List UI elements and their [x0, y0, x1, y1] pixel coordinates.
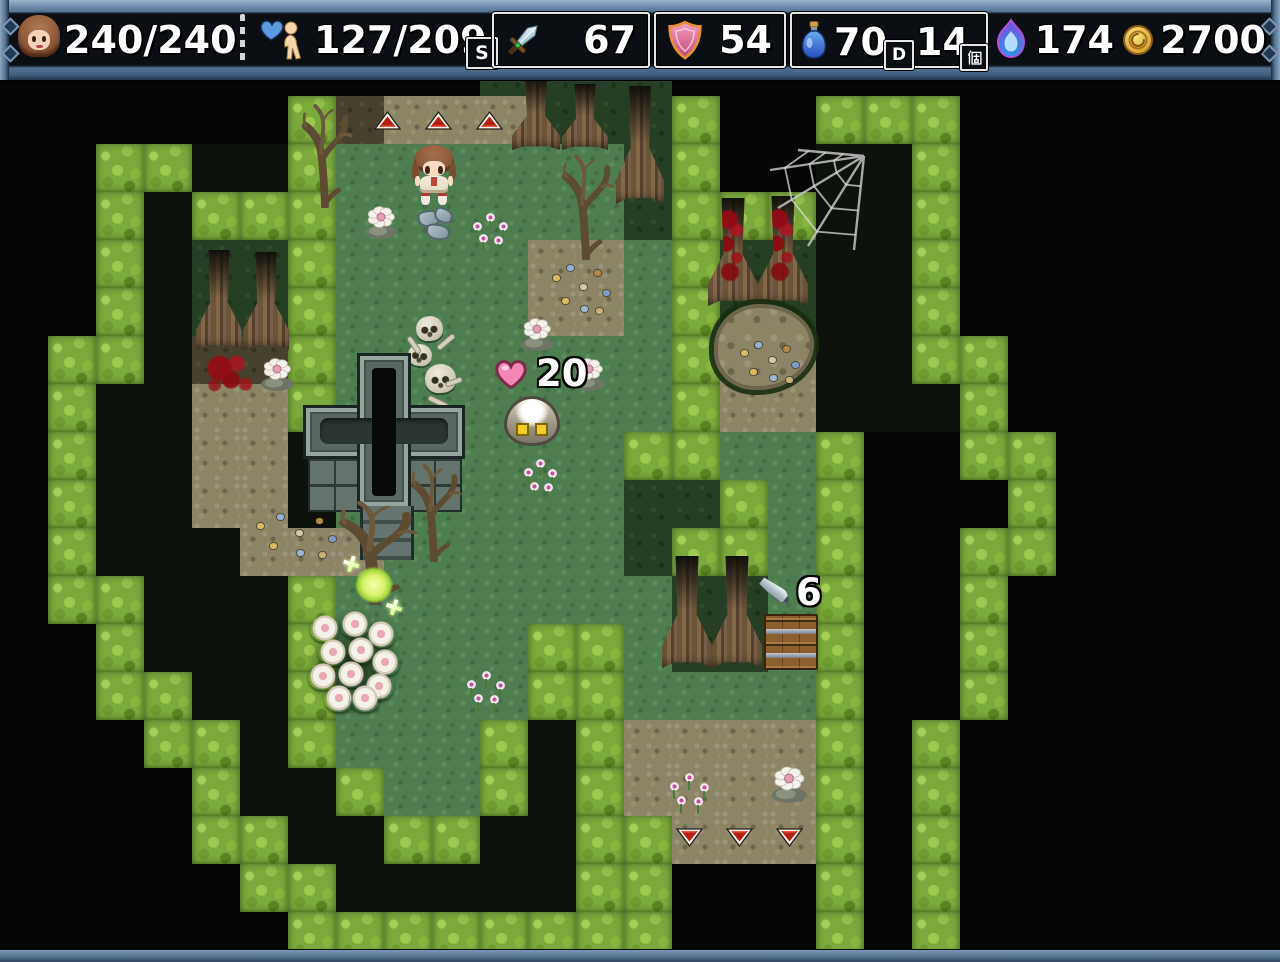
skill-value: 174	[1028, 17, 1114, 63]
tile-bush	[960, 672, 1008, 720]
tile-dirt	[192, 432, 240, 480]
hud-right-cap	[1271, 0, 1280, 80]
tile-grass	[624, 576, 672, 624]
tile-bush	[624, 432, 672, 480]
tile-grass	[768, 432, 816, 480]
tile-bush	[816, 672, 864, 720]
tile-bush	[1008, 480, 1056, 528]
tile-grass	[432, 576, 480, 624]
tile-dark-ground	[192, 144, 240, 192]
tile-bush	[96, 672, 144, 720]
kanji-ko-glyph	[966, 49, 983, 66]
tile-dark-ground	[144, 240, 192, 288]
tile-bush	[96, 144, 144, 192]
defense-value: 54	[704, 17, 784, 63]
flower-on-stone	[362, 204, 400, 240]
tile-bush	[816, 96, 864, 144]
tile-dark-ground	[528, 720, 576, 768]
tile-grass	[480, 144, 528, 192]
tile-bush	[960, 576, 1008, 624]
tile-bush	[576, 816, 624, 864]
tile-bush	[912, 720, 960, 768]
tile-bush	[576, 624, 624, 672]
damage-popup: 6	[758, 574, 822, 620]
tile-dark-ground	[816, 336, 864, 384]
face-eye	[32, 36, 36, 42]
dead-tree	[556, 148, 616, 260]
tile-bush	[816, 864, 864, 912]
potion-icon	[800, 20, 828, 60]
tile-bush	[96, 576, 144, 624]
tile-dark-ground	[816, 384, 864, 432]
tile-bush	[672, 144, 720, 192]
damage-amount: 6	[796, 574, 822, 611]
pink-flowers	[664, 770, 714, 812]
dead-tree	[296, 98, 354, 208]
tile-dark-ground	[912, 384, 960, 432]
tile-bush	[864, 96, 912, 144]
stone-creature	[504, 396, 560, 446]
tile-bush	[912, 768, 960, 816]
exit-arrow-down	[726, 828, 753, 847]
tile-dark-ground	[288, 816, 336, 864]
tile-bush	[912, 864, 960, 912]
tile-grass	[336, 720, 384, 768]
bottom-frame-bar	[0, 949, 1280, 962]
scattered-items	[548, 258, 612, 320]
wooden-crates	[764, 614, 818, 670]
tile-bush	[48, 480, 96, 528]
tile-grass	[432, 624, 480, 672]
tile-dark-ground	[192, 528, 240, 576]
tile-grass	[480, 576, 528, 624]
tile-grass	[384, 240, 432, 288]
tile-bush	[480, 720, 528, 768]
tile-dark-ground	[528, 768, 576, 816]
item-unit-badge	[960, 44, 988, 71]
tile-dark-ground	[816, 288, 864, 336]
tile-grass	[528, 576, 576, 624]
tile-dark-ground	[144, 576, 192, 624]
tile-dark-ground	[144, 624, 192, 672]
tile-grass	[768, 528, 816, 576]
tile-dark-ground	[480, 864, 528, 912]
tile-bush	[192, 816, 240, 864]
tile-grass	[624, 672, 672, 720]
tile-bush	[672, 96, 720, 144]
tile-dark-ground	[384, 864, 432, 912]
mp-value: 127/209	[314, 17, 487, 63]
tile-bush	[672, 432, 720, 480]
tile-bush	[912, 240, 960, 288]
tile-bush	[96, 288, 144, 336]
player-character	[412, 145, 456, 203]
attack-stat: 67	[492, 12, 650, 68]
tile-bush	[912, 96, 960, 144]
tile-bush	[288, 864, 336, 912]
blood-splatter	[202, 352, 260, 398]
tile-grass	[528, 528, 576, 576]
heart-person-icon	[258, 16, 310, 62]
tile-dark-ground	[96, 480, 144, 528]
tile-bush	[96, 240, 144, 288]
tile-dark-ground	[336, 816, 384, 864]
game-screen: 20 6	[0, 0, 1280, 962]
tile-dark-ground	[240, 720, 288, 768]
tile-bush	[480, 768, 528, 816]
tile-bush	[432, 816, 480, 864]
tile-bush	[1008, 528, 1056, 576]
tile-dark-ground	[144, 384, 192, 432]
tile-bush	[816, 720, 864, 768]
tile-bush	[48, 384, 96, 432]
shield-icon	[666, 19, 704, 61]
tile-grass	[336, 240, 384, 288]
flower-on-stone	[768, 764, 810, 804]
hud-divider	[240, 14, 245, 66]
exit-arrow-down	[676, 828, 703, 847]
flower-bush	[306, 610, 402, 718]
tile-bush	[96, 624, 144, 672]
flame-icon	[994, 18, 1028, 62]
coin-icon	[1122, 24, 1154, 56]
tile-dirt	[624, 720, 672, 768]
tile-bush	[960, 624, 1008, 672]
tile-dark-ground	[96, 384, 144, 432]
tile-grass	[384, 720, 432, 768]
tile-grass	[576, 528, 624, 576]
tile-bush	[192, 720, 240, 768]
tile-bush	[816, 528, 864, 576]
tile-bush	[528, 672, 576, 720]
pink-flowers	[462, 668, 510, 710]
tile-bush	[624, 816, 672, 864]
tile-dark-ground	[864, 288, 912, 336]
flower-on-stone	[258, 356, 296, 392]
exit-arrow-up	[374, 111, 401, 130]
tile-bush	[144, 672, 192, 720]
scattered-items	[250, 508, 342, 562]
tile-dark-ground	[288, 768, 336, 816]
heal-heart-icon	[492, 355, 530, 391]
tile-dark-ground	[192, 576, 240, 624]
tile-bush	[960, 432, 1008, 480]
tile-grass	[480, 624, 528, 672]
tile-grass	[624, 288, 672, 336]
tile-dark-ground	[864, 336, 912, 384]
tile-dark-ground	[144, 432, 192, 480]
tile-dark-ground	[528, 816, 576, 864]
tile-bush	[240, 192, 288, 240]
tile-grass	[432, 720, 480, 768]
tile-dirt	[720, 384, 768, 432]
tile-bush	[576, 768, 624, 816]
tile-bush	[336, 768, 384, 816]
tile-grass	[768, 480, 816, 528]
tile-grass	[576, 576, 624, 624]
tile-bush	[624, 864, 672, 912]
tile-dark-ground	[144, 480, 192, 528]
tile-dark-ground	[144, 528, 192, 576]
tile-bush	[816, 768, 864, 816]
exit-arrow-up	[425, 111, 452, 130]
tile-bush	[720, 480, 768, 528]
tile-bush	[288, 288, 336, 336]
tile-bush	[960, 384, 1008, 432]
tile-grass	[480, 528, 528, 576]
tile-bush	[288, 720, 336, 768]
dead-tree	[405, 458, 463, 562]
player-face-icon	[16, 15, 62, 63]
hud-left-cap	[0, 0, 9, 80]
tile-bush	[672, 384, 720, 432]
tile-dirt	[768, 384, 816, 432]
tile-bush	[96, 336, 144, 384]
attack-value: 67	[544, 17, 648, 63]
tile-grass	[336, 288, 384, 336]
tile-bush	[576, 864, 624, 912]
pink-flowers	[520, 456, 560, 498]
flower-on-stone	[518, 316, 556, 352]
tile-dirt	[192, 480, 240, 528]
tile-dark-ground	[192, 672, 240, 720]
tile-grass-shaded	[672, 480, 720, 528]
tile-dirt	[768, 720, 816, 768]
tile-dark-ground	[864, 384, 912, 432]
tile-bush	[48, 432, 96, 480]
tile-grass	[720, 432, 768, 480]
tile-grass	[768, 672, 816, 720]
tile-bush	[912, 816, 960, 864]
sword-icon	[502, 19, 544, 61]
tile-dark-ground	[144, 288, 192, 336]
tile-bush	[576, 720, 624, 768]
stones	[418, 208, 462, 240]
tile-dirt	[672, 720, 720, 768]
tile-dark-ground	[240, 672, 288, 720]
tile-bush	[576, 672, 624, 720]
tile-bush	[816, 816, 864, 864]
tile-dark-ground	[336, 864, 384, 912]
tile-bush	[912, 144, 960, 192]
tile-bush	[48, 336, 96, 384]
exit-arrow-down	[776, 828, 803, 847]
defense-stat: 54	[654, 12, 786, 68]
tile-grass-shaded	[624, 480, 672, 528]
tile-bush	[912, 288, 960, 336]
tile-bush	[816, 624, 864, 672]
tile-grass	[720, 672, 768, 720]
game-map[interactable]: 20 6	[0, 0, 1280, 962]
face-eye	[42, 36, 46, 42]
tile-grass	[624, 240, 672, 288]
tile-dirt	[720, 720, 768, 768]
tile-bush	[912, 336, 960, 384]
tile-bush	[240, 816, 288, 864]
pink-flowers	[468, 210, 512, 250]
tile-dark-ground	[96, 528, 144, 576]
tile-dirt	[240, 432, 288, 480]
hp-value: 240/240	[64, 17, 237, 63]
tile-grass	[432, 768, 480, 816]
exit-arrow-up	[476, 111, 503, 130]
item-slot-badge: D	[884, 40, 914, 70]
tile-grass-shaded	[624, 528, 672, 576]
tile-bush	[144, 720, 192, 768]
tile-bush	[1008, 432, 1056, 480]
tile-dirt	[720, 768, 768, 816]
tile-bush	[528, 624, 576, 672]
tile-dark-ground	[240, 768, 288, 816]
tile-bush	[960, 528, 1008, 576]
tile-bush	[672, 192, 720, 240]
tile-dark-ground	[144, 192, 192, 240]
item-stat: 70 D 14	[790, 12, 988, 68]
gold-value: 2700	[1154, 17, 1266, 63]
tile-bush	[48, 576, 96, 624]
tile-bush	[96, 192, 144, 240]
tile-grass	[576, 480, 624, 528]
tile-dark-ground	[240, 144, 288, 192]
tile-bush	[192, 192, 240, 240]
tile-dark-ground	[480, 816, 528, 864]
tile-bush	[288, 240, 336, 288]
tile-dark-ground	[240, 624, 288, 672]
scattered-items	[736, 336, 802, 386]
tile-bush	[816, 432, 864, 480]
tile-grass-shaded	[624, 192, 672, 240]
tile-bush	[816, 480, 864, 528]
tile-dark-ground	[192, 624, 240, 672]
tile-dark-ground	[528, 864, 576, 912]
tile-grass	[624, 336, 672, 384]
hud-bar: 240/240 127/209 S	[0, 0, 1280, 81]
tile-dark-ground	[432, 864, 480, 912]
tile-dark-ground	[240, 576, 288, 624]
tile-grass	[576, 432, 624, 480]
tile-grass	[624, 384, 672, 432]
tile-bush	[144, 144, 192, 192]
tile-bush	[672, 336, 720, 384]
tile-bush	[912, 192, 960, 240]
tile-bush	[960, 336, 1008, 384]
tile-bush	[816, 576, 864, 624]
tile-bush	[384, 816, 432, 864]
tile-bush	[240, 864, 288, 912]
spider-web	[768, 146, 872, 252]
tile-grass	[672, 672, 720, 720]
tile-dark-ground	[96, 432, 144, 480]
knife-icon	[757, 575, 792, 607]
tile-bush	[48, 528, 96, 576]
tile-bush	[192, 768, 240, 816]
heal-amount: 20	[536, 355, 588, 392]
face-mouth	[36, 45, 43, 48]
heal-popup: 20	[492, 355, 576, 397]
tile-dark-ground	[144, 336, 192, 384]
tile-grass	[384, 768, 432, 816]
